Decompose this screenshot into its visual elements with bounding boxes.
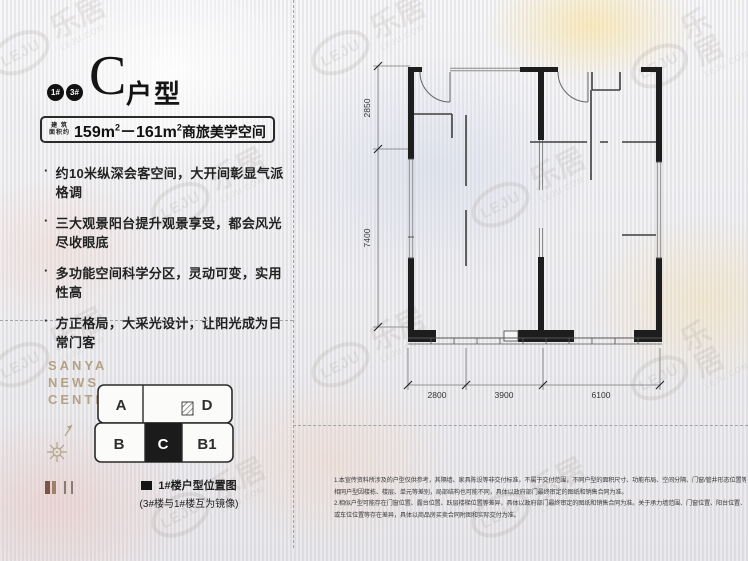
legend-title: 1#楼户型位置图 <box>158 477 236 493</box>
dim-bottom-2800: 2800 <box>428 390 447 400</box>
balcony-step <box>504 331 518 341</box>
dim-left-2850: 2850 <box>362 98 372 117</box>
disclaimer-line: 2.相似户型可能存在门窗位置、露台位置、跃层楼梯位置等差异，具体以政府部门最终审… <box>334 498 746 510</box>
disclaimer-line: 1.本宣传资料所涉及的户型仅供参考，其隔墙、家具陈设等非交付标准，不属于交付范围… <box>334 475 746 487</box>
compass-icon <box>44 420 78 466</box>
barcode <box>45 481 73 494</box>
unit-label-b: B <box>114 436 125 453</box>
leju-floorplan-page: LEJU乐居LEJU.COM LEJU乐居LEJU.COM LEJU乐居LEJU… <box>0 0 748 561</box>
feature-item: ·多功能空间科学分区，灵动可变，实用性高 <box>44 263 294 301</box>
bullet-icon: · <box>44 163 49 201</box>
unit-label-d: D <box>202 397 213 414</box>
shaft-hatch <box>182 402 193 415</box>
disclaimer: 1.本宣传资料所涉及的户型仅供参考，其隔墙、家具陈设等非交付标准，不属于交付范围… <box>334 475 746 521</box>
windows <box>408 68 662 258</box>
unit-type-letter: C <box>89 48 126 104</box>
unit-location-map: A D B C B1 <box>93 383 235 475</box>
unit-map-legend: 1#楼户型位置图 (3#楼与1#楼互为镜像) <box>104 477 274 510</box>
dim-bottom-6100: 6100 <box>592 390 611 400</box>
feature-item: ·约10米纵深会客空间，大开间彰显气派格调 <box>44 163 294 201</box>
divider-horizontal-right <box>293 425 748 426</box>
leju-logo-icon: LEJU <box>0 21 57 85</box>
building-badge-3: 3# <box>66 84 83 101</box>
feature-list: ·约10米纵深会客空间，大开间彰显气派格调 ·三大观景阳台提升观景享受，都会风光… <box>44 163 294 363</box>
disclaimer-line: 或车位位置等存在差异，具体以商品房买卖合同附图和实际交付为准。 <box>334 510 746 522</box>
bullet-icon: · <box>44 213 49 251</box>
feature-item: ·方正格局，大采光设计，让阳光成为日常门客 <box>44 313 294 351</box>
legend-square-icon <box>141 481 152 490</box>
area-label: 建 筑 面积约 <box>49 123 70 137</box>
unit-label-b1: B1 <box>197 436 216 453</box>
load-bearing-walls <box>408 67 662 342</box>
area-box: 建 筑 面积约 159m2－161m2商旅美学空间 <box>40 116 275 143</box>
floor-plan: 2850 7400 2800 3900 6100 <box>330 40 740 420</box>
dim-left-7400: 7400 <box>362 228 372 247</box>
feature-item: ·三大观景阳台提升观景享受，都会风光尽收眼底 <box>44 213 294 251</box>
building-badge-1: 1# <box>47 84 64 101</box>
dim-bottom-3900: 3900 <box>495 390 514 400</box>
area-desc: 商旅美学空间 <box>182 124 266 140</box>
bullet-icon: · <box>44 313 49 351</box>
area-value: 159m2－161m2商旅美学空间 <box>74 118 266 142</box>
unit-label-c: C <box>158 436 169 453</box>
unit-label-a: A <box>116 397 127 414</box>
unit-type-label: 户型 <box>126 74 182 111</box>
bullet-icon: · <box>44 263 49 301</box>
legend-note: (3#楼与1#楼互为镜像) <box>104 495 274 510</box>
door-swings <box>420 72 588 102</box>
disclaimer-line: 相同户型因楼栋、楼层、单元等差别，局部结构也可能不同，具体以政府部门最终审定的图… <box>334 487 746 499</box>
